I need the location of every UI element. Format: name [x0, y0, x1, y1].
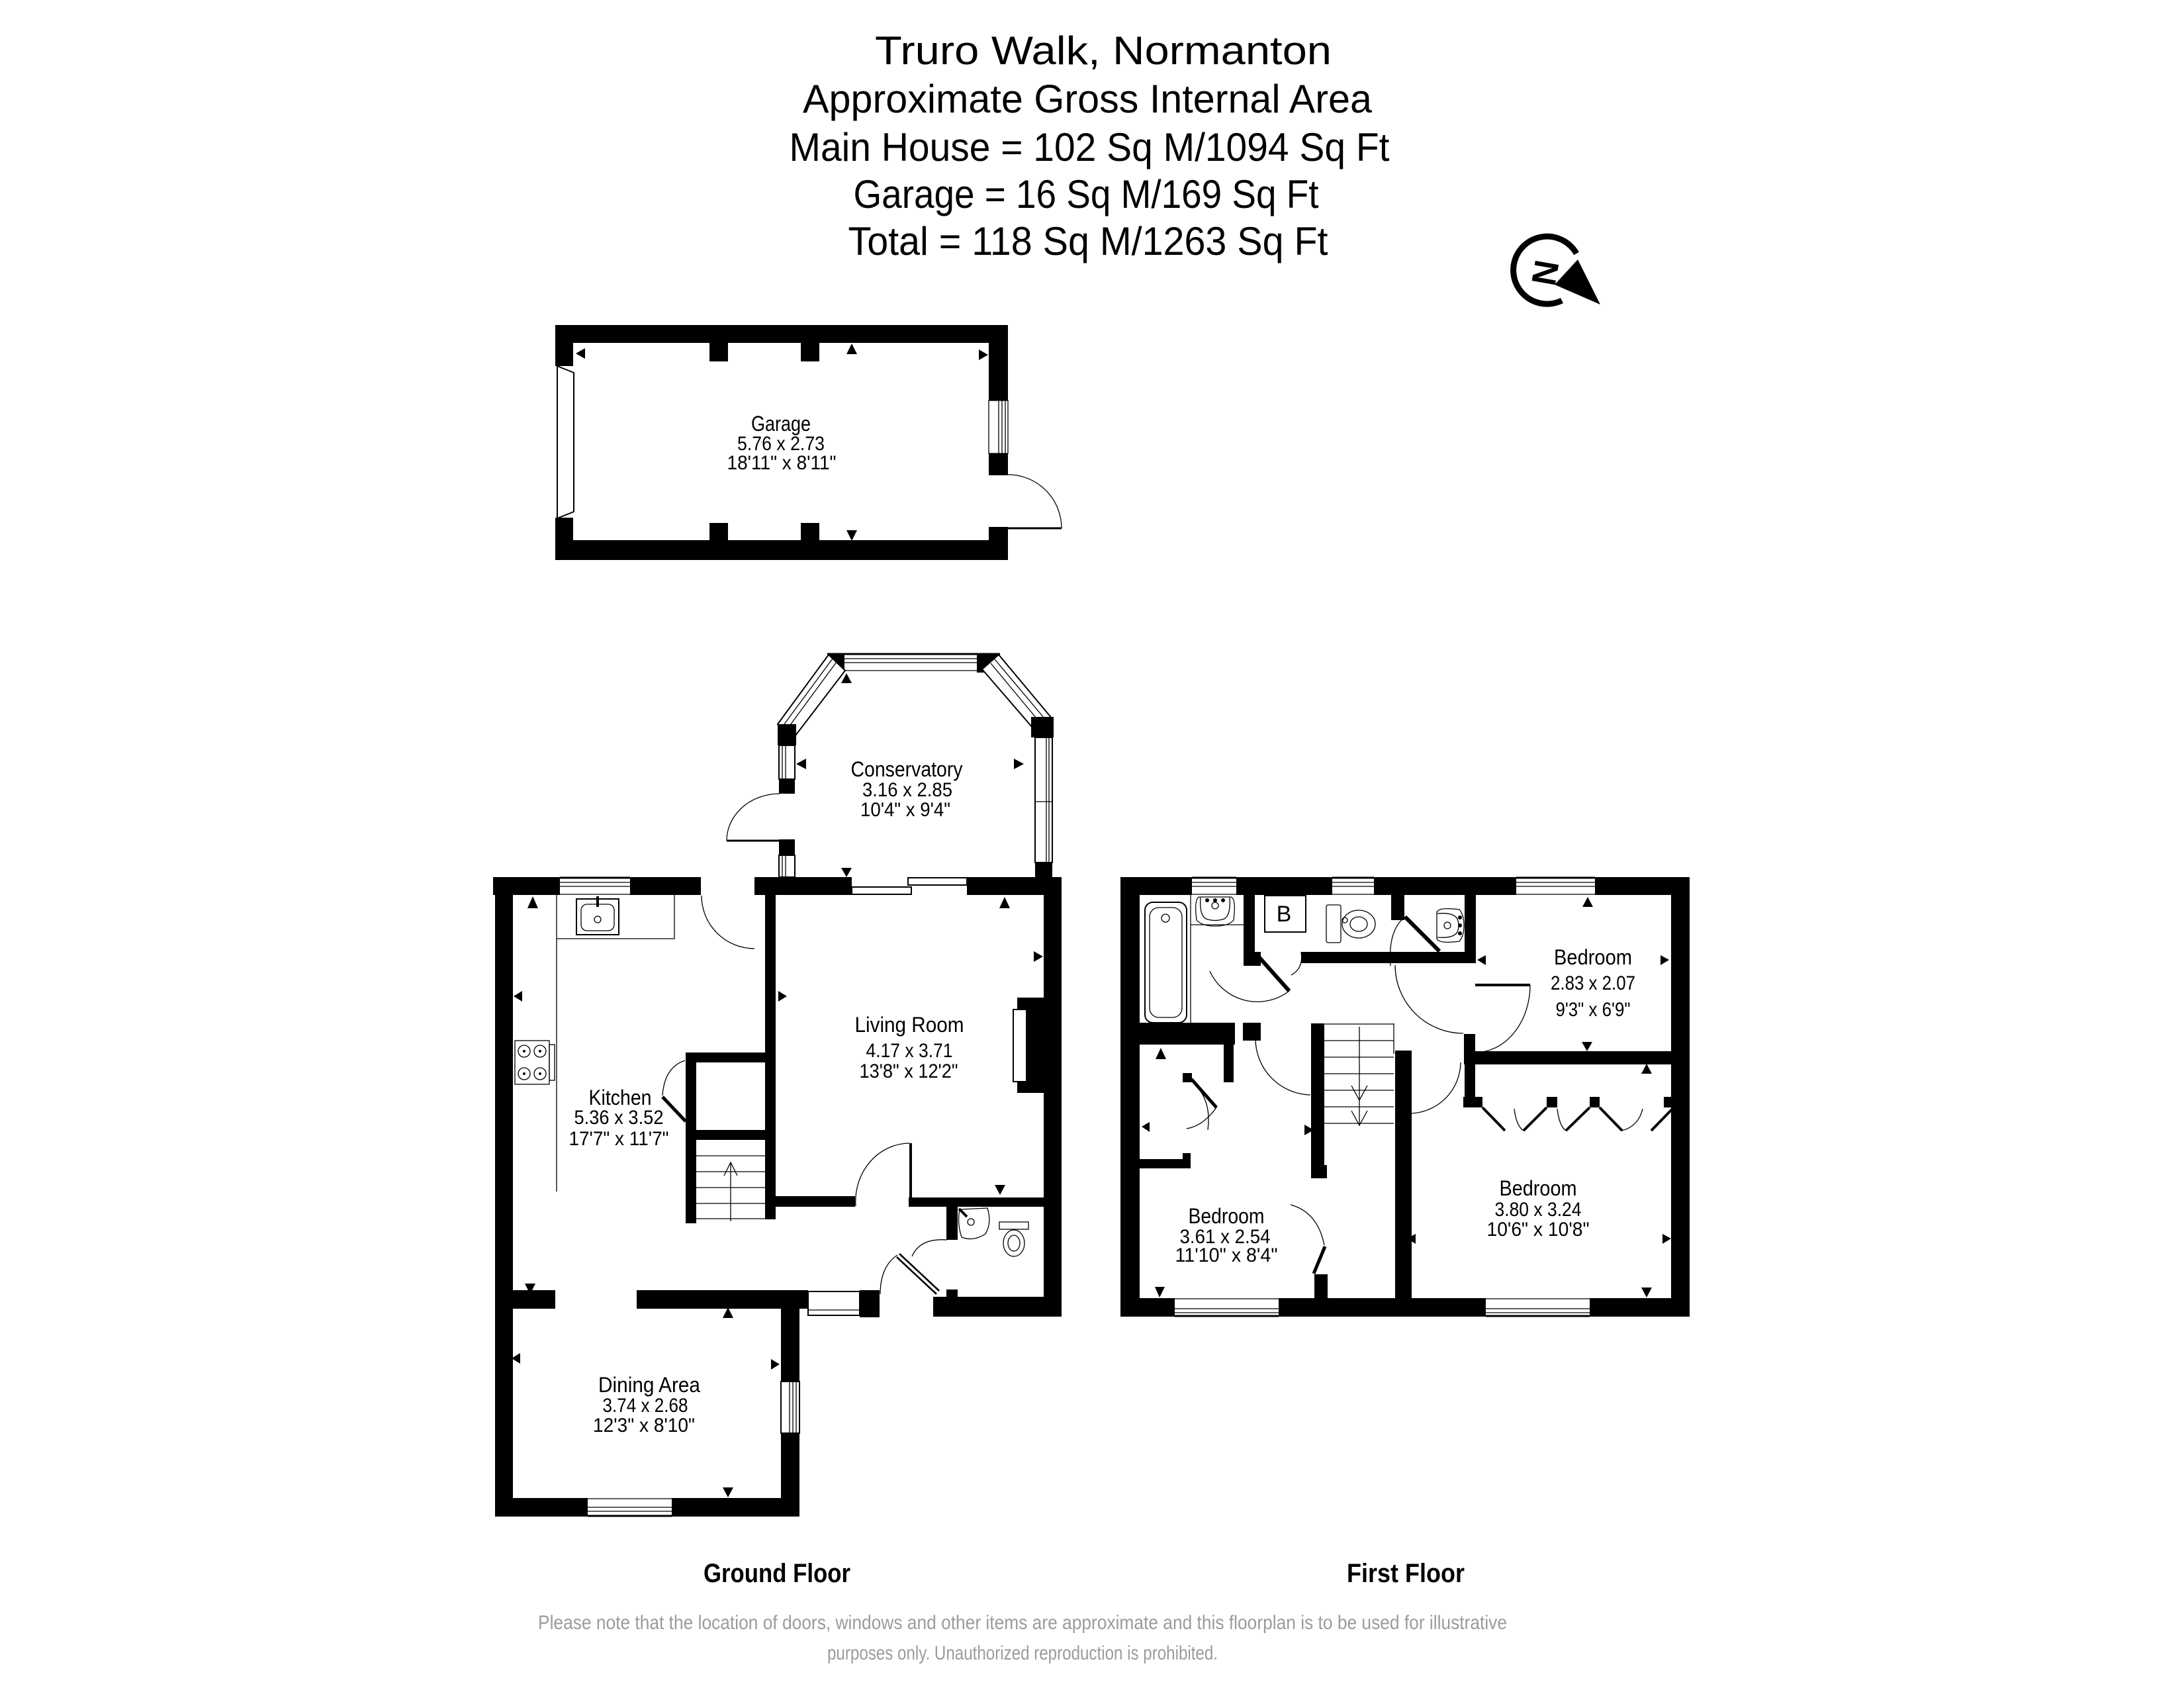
svg-text:purposes only. Unauthorized re: purposes only. Unauthorized reproduction… — [827, 1642, 1218, 1664]
svg-text:Total = 118 Sq M/1263 Sq Ft: Total = 118 Sq M/1263 Sq Ft — [848, 219, 1328, 263]
svg-text:5.36 x 3.52: 5.36 x 3.52 — [574, 1107, 664, 1129]
svg-text:10'6" x 10'8": 10'6" x 10'8" — [1487, 1219, 1590, 1241]
svg-text:Bedroom: Bedroom — [1189, 1204, 1265, 1228]
svg-text:Ground Floor: Ground Floor — [704, 1559, 850, 1588]
svg-text:3.74 x 2.68: 3.74 x 2.68 — [603, 1395, 688, 1417]
svg-text:17'7" x 11'7": 17'7" x 11'7" — [569, 1128, 669, 1150]
svg-text:Please note that the location: Please note that the location of doors, … — [538, 1612, 1507, 1634]
svg-text:Bedroom: Bedroom — [1554, 945, 1632, 969]
svg-text:3.16 x 2.85: 3.16 x 2.85 — [862, 779, 952, 801]
svg-text:Main House = 102 Sq M/1094 Sq: Main House = 102 Sq M/1094 Sq Ft — [790, 125, 1390, 169]
svg-text:Kitchen: Kitchen — [589, 1086, 652, 1109]
svg-text:3.80 x 3.24: 3.80 x 3.24 — [1495, 1199, 1582, 1221]
svg-text:2.83 x 2.07: 2.83 x 2.07 — [1551, 972, 1635, 994]
svg-text:18'11" x 8'11": 18'11" x 8'11" — [727, 452, 837, 474]
svg-text:Living Room: Living Room — [855, 1013, 964, 1037]
svg-text:Bedroom: Bedroom — [1500, 1176, 1577, 1200]
svg-text:9'3" x 6'9": 9'3" x 6'9" — [1556, 999, 1631, 1021]
svg-text:11'10" x 8'4": 11'10" x 8'4" — [1175, 1244, 1278, 1266]
svg-text:Dining Area: Dining Area — [598, 1373, 700, 1397]
svg-text:Garage = 16 Sq M/169 Sq Ft: Garage = 16 Sq M/169 Sq Ft — [854, 172, 1319, 216]
svg-text:Truro Walk, Normanton: Truro Walk, Normanton — [875, 28, 1332, 73]
svg-text:4.17 x 3.71: 4.17 x 3.71 — [866, 1040, 953, 1062]
svg-text:13'8" x 12'2": 13'8" x 12'2" — [860, 1060, 958, 1082]
svg-text:Conservatory: Conservatory — [851, 757, 963, 781]
svg-text:12'3" x 8'10": 12'3" x 8'10" — [593, 1415, 695, 1436]
svg-text:Approximate Gross Internal Are: Approximate Gross Internal Area — [803, 77, 1373, 121]
svg-text:Garage: Garage — [751, 412, 811, 436]
svg-text:First Floor: First Floor — [1347, 1559, 1465, 1588]
svg-text:10'4" x 9'4": 10'4" x 9'4" — [860, 799, 950, 821]
svg-text:B: B — [1277, 902, 1292, 927]
